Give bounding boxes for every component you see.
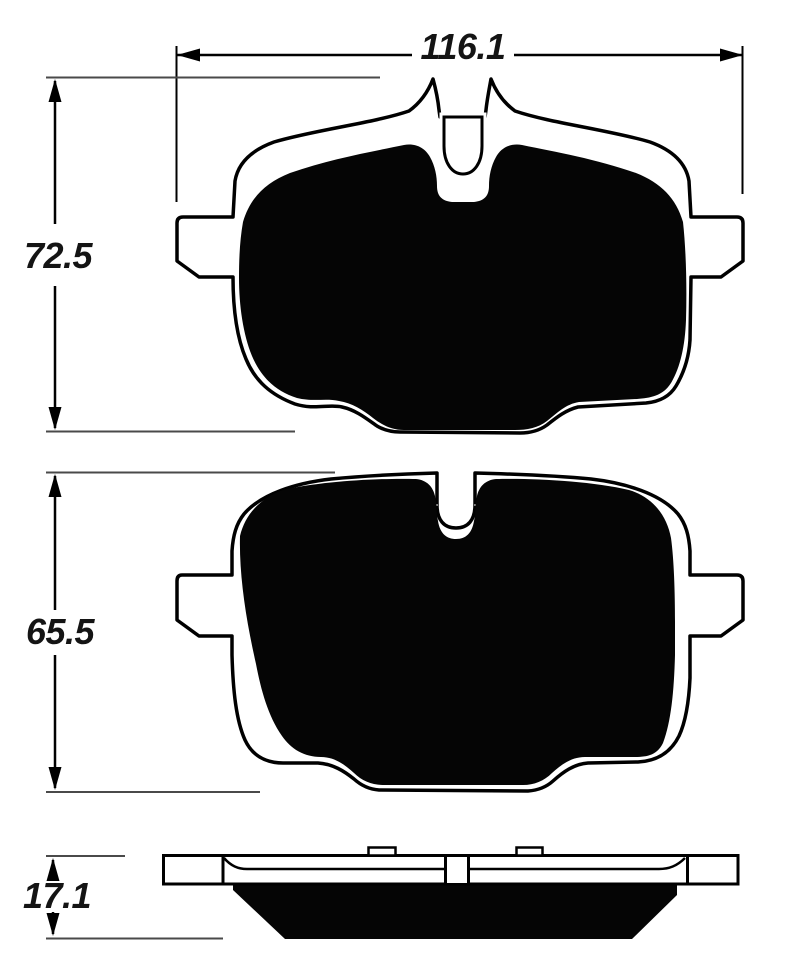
pad-side-profile-view xyxy=(164,848,739,940)
technical-drawing-canvas: 116.1 72.5 65.5 17.1 xyxy=(0,0,788,964)
dim-label-pad1-height: 72.5 xyxy=(24,235,94,276)
center-slot-cutout xyxy=(444,117,482,174)
dim-label-pad2-height: 65.5 xyxy=(26,611,96,652)
arrow-left-icon xyxy=(177,49,200,62)
pad-front-view-2 xyxy=(177,473,743,791)
shim-tab-left xyxy=(369,848,396,856)
dim-label-pad-width: 116.1 xyxy=(421,26,506,67)
shim-tab-right xyxy=(517,848,543,856)
friction-material xyxy=(240,479,675,785)
arrow-up-icon xyxy=(49,474,62,497)
dim-label-pad-thickness: 17.1 xyxy=(23,875,91,916)
arrow-up-icon xyxy=(49,79,62,102)
pad-front-view-1 xyxy=(177,79,743,433)
arrow-down-icon xyxy=(49,407,62,430)
arrow-down-icon xyxy=(47,913,60,936)
arrow-down-icon xyxy=(49,767,62,790)
center-divider xyxy=(446,857,468,883)
friction-material-side xyxy=(233,884,677,939)
brake-pad-drawing: 116.1 72.5 65.5 17.1 xyxy=(0,0,788,964)
arrow-right-icon xyxy=(720,49,743,62)
